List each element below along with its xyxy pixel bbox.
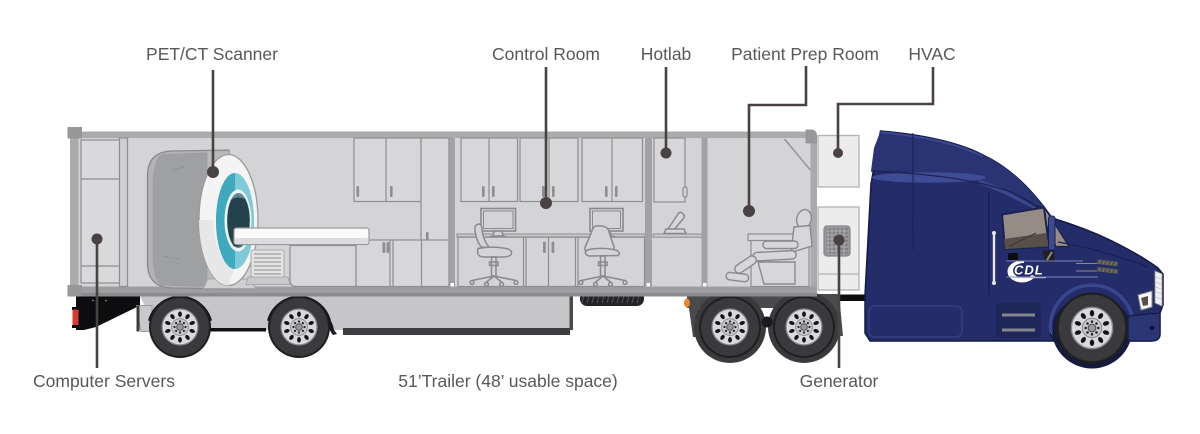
svg-text:Computer Servers: Computer Servers xyxy=(33,371,175,391)
svg-text:HVAC: HVAC xyxy=(908,44,955,64)
svg-text:Hotlab: Hotlab xyxy=(641,44,692,64)
svg-text:Generator: Generator xyxy=(800,371,879,391)
svg-text:Patient Prep Room: Patient Prep Room xyxy=(731,44,879,64)
svg-text:PET/CT Scanner: PET/CT Scanner xyxy=(146,44,278,64)
svg-text:CDL: CDL xyxy=(1014,263,1044,278)
svg-text:Control Room: Control Room xyxy=(492,44,600,64)
svg-text:51’Trailer (48’ usable space): 51’Trailer (48’ usable space) xyxy=(398,371,618,391)
